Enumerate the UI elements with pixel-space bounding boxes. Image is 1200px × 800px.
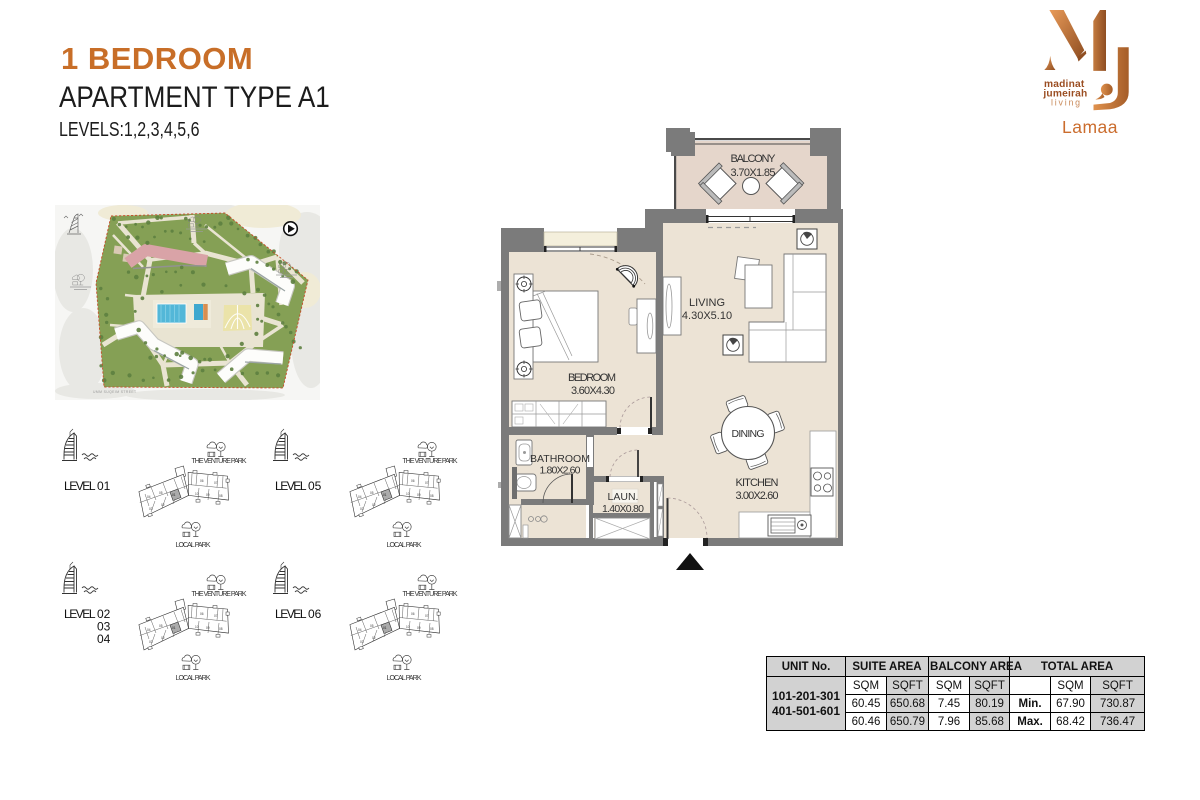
svg-text:LEVEL: LEVEL — [64, 479, 96, 493]
svg-text:BEDROOM: BEDROOM — [568, 372, 616, 384]
svg-text:LEVEL: LEVEL — [275, 607, 307, 621]
svg-text:BATHROOM: BATHROOM — [530, 453, 590, 465]
svg-text:LEVEL: LEVEL — [64, 607, 96, 621]
svg-text:LOCAL PARK: LOCAL PARK — [176, 675, 211, 682]
svg-text:living: living — [1051, 98, 1082, 108]
svg-text:LOCAL PARK: LOCAL PARK — [387, 675, 422, 682]
svg-text:THE VENTURE PARK: THE VENTURE PARK — [403, 458, 458, 465]
svg-text:LAUN.: LAUN. — [608, 491, 639, 503]
svg-text:Lamaa: Lamaa — [1062, 117, 1118, 137]
svg-text:LEVEL: LEVEL — [275, 479, 307, 493]
svg-text:THE VENTURE PARK: THE VENTURE PARK — [192, 591, 247, 598]
svg-text:THE VENTURE PARK: THE VENTURE PARK — [403, 591, 458, 598]
svg-text:04: 04 — [97, 632, 111, 646]
svg-text:THE VENTURE PARK: THE VENTURE PARK — [192, 458, 247, 465]
svg-text:LOCAL PARK: LOCAL PARK — [387, 542, 422, 549]
svg-text:3.70X1.85: 3.70X1.85 — [731, 167, 776, 179]
svg-text:4.30X5.10: 4.30X5.10 — [682, 310, 732, 322]
svg-text:05: 05 — [308, 479, 322, 493]
svg-text:UMM SUQEIM STREET: UMM SUQEIM STREET — [93, 390, 137, 394]
svg-text:3.00X2.60: 3.00X2.60 — [736, 490, 779, 502]
svg-text:BALCONY: BALCONY — [731, 153, 777, 165]
svg-text:LIVING: LIVING — [689, 297, 725, 309]
svg-text:1.80X2.60: 1.80X2.60 — [540, 465, 581, 477]
svg-text:3.60X4.30: 3.60X4.30 — [571, 385, 615, 397]
svg-text:1.40X0.80: 1.40X0.80 — [602, 503, 644, 515]
svg-text:KITCHEN: KITCHEN — [736, 477, 779, 489]
svg-text:LOCAL PARK: LOCAL PARK — [176, 542, 211, 549]
svg-text:DINING: DINING — [732, 428, 765, 440]
svg-text:01: 01 — [97, 479, 111, 493]
svg-text:06: 06 — [308, 607, 322, 621]
